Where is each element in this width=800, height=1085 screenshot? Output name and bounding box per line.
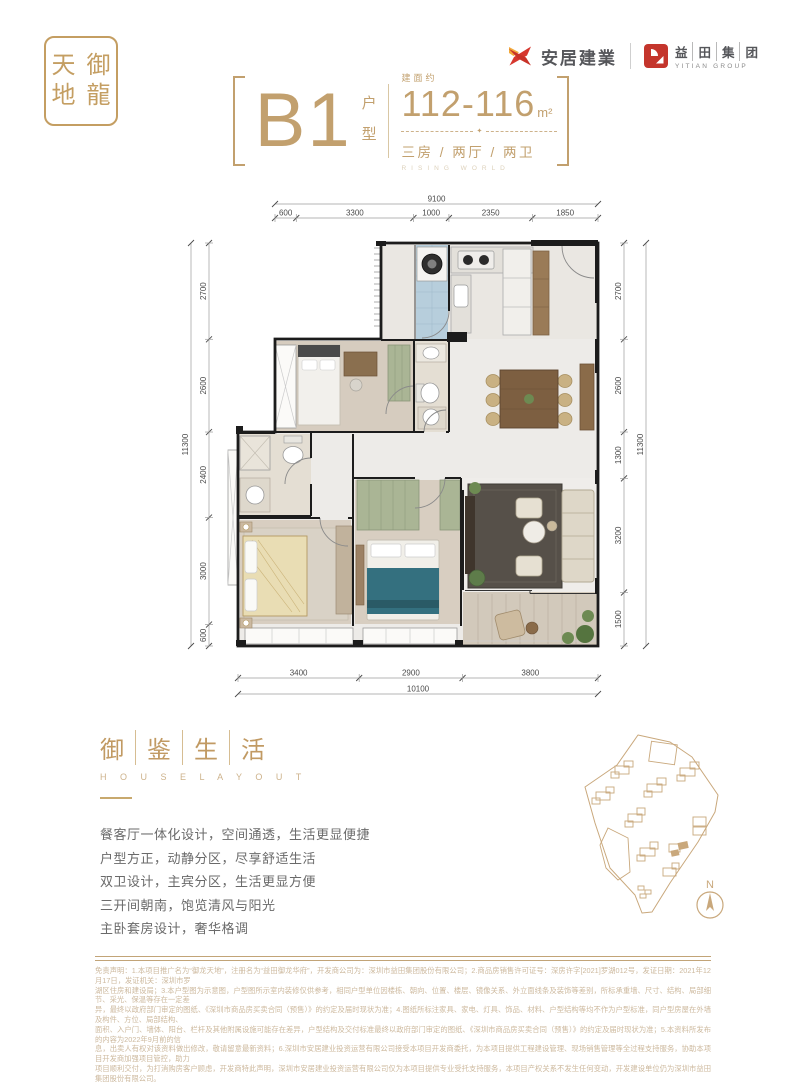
svg-text:3300: 3300 xyxy=(346,209,364,218)
brochure-page: 天御地龍 安居建業 益田集团 YITIAN GROUP B1 xyxy=(0,0,800,1085)
svg-text:2600: 2600 xyxy=(614,376,623,394)
anju-logo-label: 安居建業 xyxy=(541,44,617,69)
tv-cabinet xyxy=(465,496,475,574)
disclaimer-line: 异，最终以政府部门审定的图纸、《深圳市商品房买卖合同（预售）》的约定及届时现状为… xyxy=(95,1005,711,1025)
pillow xyxy=(405,544,435,557)
svg-text:1500: 1500 xyxy=(614,610,623,628)
heading-char: 鉴 xyxy=(135,730,171,765)
svg-text:1850: 1850 xyxy=(556,209,574,218)
disclaimer-line: 面积、入户门、墙体、阳台、栏杆及其他附属设施可能存在差异，户型结构及交付标准最终… xyxy=(95,1025,711,1045)
fridge-cabinet xyxy=(503,249,531,335)
svg-text:3200: 3200 xyxy=(614,526,623,544)
sideboard xyxy=(580,364,594,430)
headboard xyxy=(298,345,340,357)
armchair xyxy=(516,556,542,576)
svg-text:3400: 3400 xyxy=(290,669,308,678)
feature-item: 主卧套房设计，奢华格调 xyxy=(100,922,450,935)
heading-char: 御 xyxy=(100,730,124,765)
wardrobe xyxy=(357,480,419,530)
unit-title-block: B1 户型 建面约 112-116 m² ✦ 三房 / 两厅 / 两卫 RISI… xyxy=(233,76,569,166)
features-heading: 御鉴生活 xyxy=(100,730,450,765)
round-basin xyxy=(423,409,439,425)
toilet xyxy=(421,383,439,403)
room-layout: 三房 / 两厅 / 两卫 xyxy=(401,141,557,161)
wardrobe xyxy=(440,480,460,530)
logo-divider xyxy=(630,43,631,69)
yitian-char: 田 xyxy=(692,42,711,61)
plant xyxy=(576,625,594,643)
anju-logo-icon xyxy=(506,44,533,68)
disclaimer-line: 免责声明：1.本项目推广名为“御龙天地”，注册名为“益田御龙华府”，开发商公司为… xyxy=(95,966,711,986)
pillow xyxy=(320,360,335,370)
round-basin xyxy=(246,486,264,504)
svg-text:600: 600 xyxy=(279,209,293,218)
master-bedroom xyxy=(240,522,352,628)
podium xyxy=(600,828,630,880)
yitian-char: 集 xyxy=(716,42,735,61)
yitian-char: 益 xyxy=(675,42,688,61)
svg-text:2350: 2350 xyxy=(482,209,500,218)
features-list: 餐客厅一体化设计，空间通透，生活更显便捷户型方正，动静分区，尽享舒适生活双卫设计… xyxy=(100,828,450,935)
entry-cabinet xyxy=(533,251,549,335)
room-layout-sub: RISING WORLD xyxy=(401,165,557,172)
yitian-logo: 益田集团 YITIAN GROUP xyxy=(644,42,758,70)
heading-char: 活 xyxy=(229,730,265,765)
siteplan: N xyxy=(570,710,740,940)
svg-text:3000: 3000 xyxy=(199,562,208,580)
area-value: 112-116 xyxy=(401,85,535,123)
coffee-table xyxy=(523,521,545,543)
svg-text:3800: 3800 xyxy=(521,669,539,678)
disclaimer-line: 项目顺利交付，为打消购房客户顾虑，开发商特此声明，深圳市安居建业投资运营有限公司… xyxy=(95,1064,711,1084)
siteplan-highlighted-building xyxy=(670,841,688,857)
area-label: 建面约 xyxy=(401,71,557,84)
seal-char: 御 xyxy=(87,54,111,78)
seal-char: 龍 xyxy=(87,84,111,108)
yitian-char: 团 xyxy=(739,42,758,61)
armchair xyxy=(516,498,542,518)
dashed-divider: ✦ xyxy=(401,128,557,135)
desk xyxy=(344,352,377,376)
yitian-logo-chars: 益田集团 xyxy=(675,42,758,61)
disclaimer: 免责声明：1.本项目推广名为“御龙天地”，注册名为“益田御龙华府”，开发商公司为… xyxy=(95,966,711,1084)
feature-item: 餐客厅一体化设计，空间通透，生活更显便捷 xyxy=(100,828,450,841)
seal-char: 天 xyxy=(52,54,76,78)
pillow xyxy=(371,544,401,557)
kitchen-sink xyxy=(454,285,468,307)
toilet xyxy=(283,447,303,464)
plant xyxy=(582,610,594,622)
svg-text:2600: 2600 xyxy=(199,376,208,394)
svg-text:2700: 2700 xyxy=(199,282,208,300)
right-bracket-decoration xyxy=(557,76,569,166)
pillow xyxy=(302,360,317,370)
svg-text:1000: 1000 xyxy=(422,209,440,218)
living-room xyxy=(465,482,594,588)
area-info: 建面约 112-116 m² ✦ 三房 / 两厅 / 两卫 RISING WOR… xyxy=(401,71,557,172)
yitian-logo-text: 益田集团 YITIAN GROUP xyxy=(675,42,758,70)
feature-item: 户型方正，动静分区，尽享舒适生活 xyxy=(100,852,450,865)
compass-icon: N xyxy=(697,879,723,918)
unit-suffix: 户型 xyxy=(358,95,379,161)
features-heading-sub: H O U S E L A Y O U T xyxy=(100,772,450,782)
svg-text:600: 600 xyxy=(199,628,208,642)
svg-text:10100: 10100 xyxy=(407,685,430,694)
svg-text:11300: 11300 xyxy=(181,433,190,455)
unit-name: B1 xyxy=(255,83,352,159)
plant xyxy=(469,482,481,494)
title-divider xyxy=(388,84,389,158)
svg-text:1300: 1300 xyxy=(614,446,623,464)
svg-text:2400: 2400 xyxy=(199,465,208,483)
console xyxy=(356,545,364,605)
svg-text:9100: 9100 xyxy=(428,195,446,204)
left-bracket-decoration xyxy=(233,76,245,166)
gold-rule-divider xyxy=(95,956,711,961)
lounge-chair xyxy=(494,609,526,641)
pillow xyxy=(245,541,257,573)
features-section: 御鉴生活 H O U S E L A Y O U T 餐客厅一体化设计，空间通透… xyxy=(100,730,450,946)
disclaimer-line: 湖区住房和建设局；3.本户型图为示意图，户型图所示室内装修仅供参考，相同户型单位… xyxy=(95,986,711,1006)
heading-char: 生 xyxy=(182,730,218,765)
plant xyxy=(469,570,485,586)
pillow xyxy=(245,579,257,611)
svg-text:11300: 11300 xyxy=(636,433,645,455)
basin xyxy=(423,347,439,359)
siteplan-buildings xyxy=(592,741,706,898)
table-plant xyxy=(524,394,534,404)
yitian-logo-sub: YITIAN GROUP xyxy=(675,63,758,70)
yitian-logo-icon xyxy=(644,44,668,68)
compass-north-label: N xyxy=(706,879,714,891)
area-unit: m² xyxy=(537,105,552,120)
svg-text:2700: 2700 xyxy=(614,282,623,300)
desk-chair xyxy=(350,379,362,391)
svg-text:2900: 2900 xyxy=(402,669,420,678)
star-icon: ✦ xyxy=(477,128,483,135)
wardrobe xyxy=(388,345,410,401)
heading-underline xyxy=(100,797,132,799)
feature-item: 双卫设计，主宾分区，生活更显方便 xyxy=(100,875,450,888)
project-seal-logo: 天御地龍 xyxy=(44,36,118,126)
plant xyxy=(562,632,574,644)
disclaimer-line: 息，出卖人有权对该资料做出修改，敬请留意最新资料；6.深圳市安居建业投资运营有限… xyxy=(95,1044,711,1064)
dresser xyxy=(336,526,352,614)
floorplan: 9100600330010002350185034002900380010100… xyxy=(180,188,670,708)
side-table xyxy=(526,622,538,634)
feature-item: 三开间朝南，饱览清风与阳光 xyxy=(100,899,450,912)
anju-logo: 安居建業 xyxy=(506,44,617,69)
seal-char: 地 xyxy=(52,84,76,108)
brand-logos: 安居建業 益田集团 YITIAN GROUP xyxy=(506,42,758,70)
